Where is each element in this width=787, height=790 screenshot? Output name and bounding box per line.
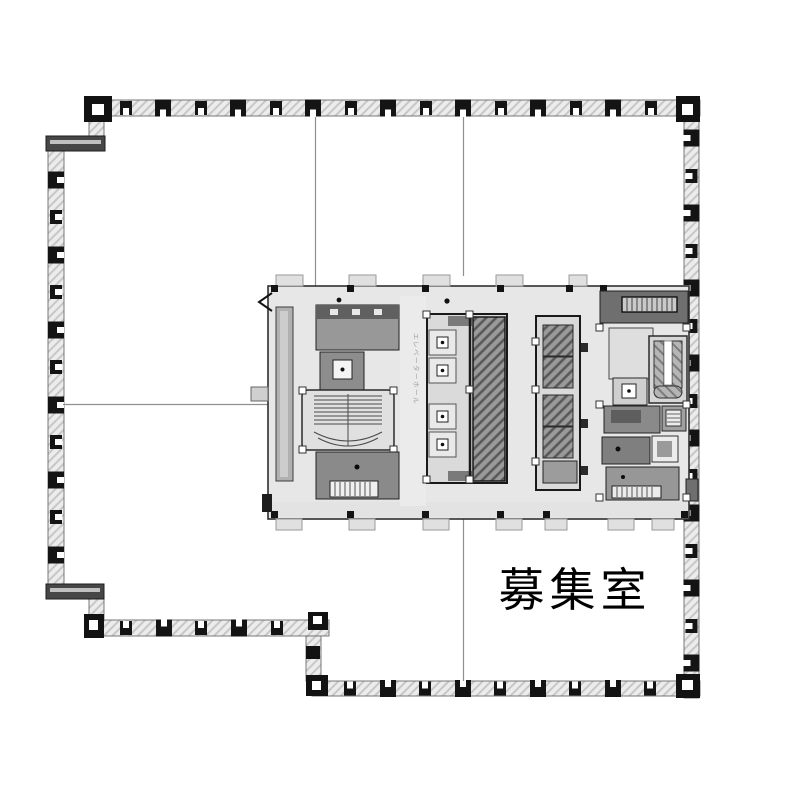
column-notch bbox=[648, 108, 654, 115]
corner-bottom-left bbox=[84, 614, 104, 638]
column-notch bbox=[236, 620, 242, 627]
column-notch bbox=[57, 177, 64, 183]
column-notch bbox=[684, 585, 691, 591]
column-notch bbox=[161, 620, 167, 627]
core-corner-block bbox=[262, 494, 272, 512]
column-notch bbox=[123, 108, 129, 115]
floor-plan-page: エレベーターホール bbox=[0, 0, 787, 790]
column-notch bbox=[572, 682, 578, 689]
column-notch bbox=[198, 108, 204, 115]
elevator-bank-right bbox=[532, 316, 588, 490]
building-core: エレベーターホール bbox=[251, 275, 698, 530]
service-staircase bbox=[649, 336, 687, 403]
corner-top-left bbox=[84, 96, 112, 122]
column-notch bbox=[57, 327, 64, 333]
core-bottom-corridor bbox=[270, 502, 687, 517]
column-notch bbox=[274, 621, 280, 628]
pipe-shaft bbox=[320, 352, 364, 390]
column-notch bbox=[55, 439, 62, 445]
floor-plan: エレベーターホール bbox=[0, 0, 787, 790]
column-notch bbox=[573, 108, 579, 115]
column-notch bbox=[686, 248, 693, 254]
column-notch bbox=[647, 682, 653, 689]
column-notch bbox=[57, 552, 64, 558]
column-notch bbox=[310, 110, 316, 117]
hvac-room bbox=[600, 291, 688, 323]
column-notch bbox=[684, 135, 691, 141]
vacant-room-label: 募集室 bbox=[499, 564, 652, 616]
corridor-dot-2 bbox=[337, 298, 342, 303]
column-notch bbox=[423, 108, 429, 115]
column-notch bbox=[348, 108, 354, 115]
column-notch bbox=[686, 173, 693, 179]
column-notch bbox=[198, 621, 204, 628]
columns-bottom-lower-wall bbox=[344, 680, 656, 697]
column-notch bbox=[610, 680, 616, 687]
column-notch bbox=[57, 402, 64, 408]
restroom-block bbox=[602, 406, 686, 500]
column-notch bbox=[55, 289, 62, 295]
column-notch bbox=[460, 110, 466, 117]
main-staircase bbox=[299, 387, 397, 453]
column-notch bbox=[55, 214, 62, 220]
corner-step-top bbox=[308, 612, 328, 630]
column-notch bbox=[422, 682, 428, 689]
column-notch bbox=[160, 110, 166, 117]
elevator-hall-label: エレベーターホール bbox=[412, 333, 421, 405]
column-notch bbox=[385, 680, 391, 687]
corridor-dot-1 bbox=[444, 298, 449, 303]
column-notch bbox=[535, 680, 541, 687]
corner-top-right bbox=[676, 96, 700, 122]
escalator bbox=[276, 307, 293, 481]
column-notch bbox=[55, 514, 62, 520]
column-notch bbox=[535, 110, 541, 117]
corner-step-mid bbox=[306, 646, 320, 659]
elevator-hall-corridor: エレベーターホール bbox=[400, 296, 426, 506]
column-notch bbox=[686, 623, 693, 629]
column-notch bbox=[57, 477, 64, 483]
column-notch bbox=[235, 110, 241, 117]
corner-bottom-right bbox=[676, 674, 700, 698]
column-notch bbox=[686, 548, 693, 554]
column-notch bbox=[497, 682, 503, 689]
shaft-fixture bbox=[613, 378, 647, 405]
column-notch bbox=[273, 108, 279, 115]
column-notch bbox=[123, 621, 129, 628]
column-notch bbox=[460, 680, 466, 687]
column-notch bbox=[347, 682, 353, 689]
columns-top-wall bbox=[120, 100, 657, 117]
corner-step-bottom bbox=[306, 675, 328, 696]
elevator-shaft bbox=[473, 317, 505, 481]
storage-room bbox=[316, 452, 399, 499]
machine-room bbox=[316, 305, 399, 350]
column-notch bbox=[684, 210, 691, 216]
column-notch bbox=[55, 364, 62, 370]
column-notch bbox=[610, 110, 616, 117]
vestibule bbox=[609, 328, 653, 379]
column-notch bbox=[385, 110, 391, 117]
column-notch bbox=[498, 108, 504, 115]
column-notch bbox=[684, 660, 691, 666]
elevator-bank-left bbox=[423, 311, 507, 483]
column-notch bbox=[57, 252, 64, 258]
